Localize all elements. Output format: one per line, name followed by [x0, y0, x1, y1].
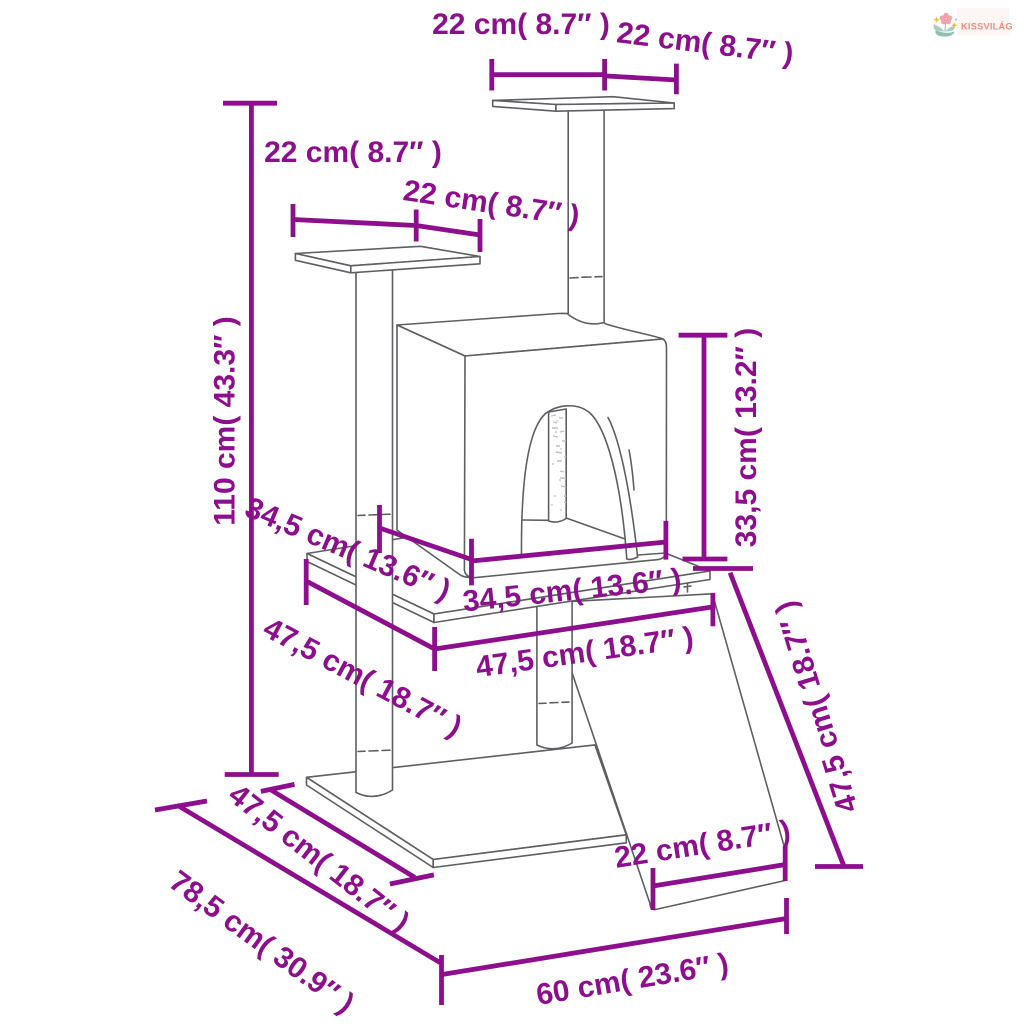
svg-text:22 cm( 8.7″ ): 22 cm( 8.7″ ): [264, 136, 442, 169]
svg-text:22 cm( 8.7″ ): 22 cm( 8.7″ ): [432, 8, 610, 41]
svg-text:33,5 cm( 13.2″ ): 33,5 cm( 13.2″ ): [730, 328, 763, 548]
svg-text:110 cm( 43.3″ ): 110 cm( 43.3″ ): [209, 316, 242, 526]
svg-text:KISSVILÁG: KISSVILÁG: [961, 21, 1013, 32]
